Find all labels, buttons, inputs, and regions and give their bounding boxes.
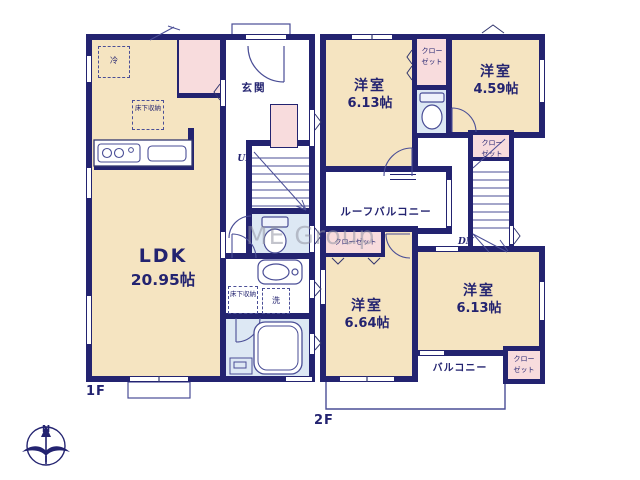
room-sw-name: 洋室: [327, 298, 407, 314]
washbasin-icon: [258, 260, 302, 284]
underfloor-storage-kitchen-label: 床下収納: [134, 104, 162, 113]
laundry-label: 洗: [262, 296, 290, 305]
kitchen-counter: [94, 140, 192, 166]
floor1-label: 1F: [86, 385, 116, 400]
entrance-door: [248, 46, 284, 82]
closet-top-label: クローゼット: [420, 46, 444, 67]
room-se-size: 6.13帖: [436, 302, 522, 317]
bath-counter: [230, 358, 252, 374]
fridge-label: 冷: [98, 56, 130, 65]
vent-flap-icon: [150, 26, 180, 40]
stairs-up-label: UP: [226, 154, 252, 164]
entrance-label: 玄関: [230, 82, 278, 94]
room-sw-size: 6.64帖: [327, 317, 407, 332]
roof-balcony-label: ルーフバルコニー: [330, 206, 442, 218]
closet-mid-label: クローゼット: [480, 138, 504, 159]
interior-doors-2f: [384, 108, 476, 258]
closet-se-label: クローゼット: [511, 354, 537, 375]
floorplan-canvas: N LDK 20.95帖 玄関 冷 床下収納 床下収納 洗 UP 1F 洋室 6…: [0, 0, 640, 480]
compass-north-label: N: [42, 424, 50, 435]
room-nw-size: 6.13帖: [329, 97, 411, 112]
compass: N: [22, 424, 70, 465]
watermark: ME Group: [246, 221, 375, 250]
bathtub-icon: [254, 322, 302, 374]
stairs-up: [252, 152, 309, 210]
balcony-label: バルコニー: [424, 363, 496, 375]
ldk-name-label: LDK: [118, 246, 208, 268]
room-nw-name: 洋室: [329, 78, 411, 94]
ldk-size-label: 20.95帖: [118, 272, 208, 290]
room-ne-name: 洋室: [451, 64, 541, 80]
toilet-icon-2f: [420, 93, 444, 129]
room-se-name: 洋室: [436, 283, 522, 299]
floor2-label: 2F: [314, 414, 344, 429]
room-ne-size: 4.59帖: [451, 83, 541, 98]
stairs-down-label: DN: [448, 237, 474, 247]
underfloor-storage-wash-label: 床下収納: [230, 290, 256, 299]
